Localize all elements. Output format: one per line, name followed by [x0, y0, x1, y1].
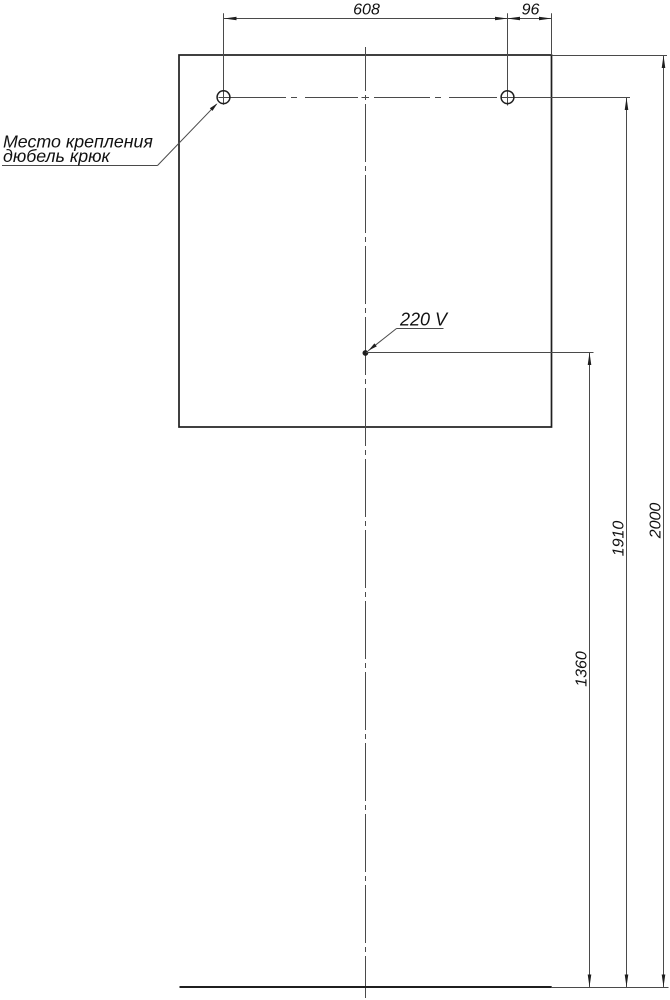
svg-text:дюбель крюк: дюбель крюк [3, 146, 110, 166]
svg-text:2000: 2000 [648, 503, 665, 540]
svg-text:96: 96 [522, 1, 540, 18]
svg-text:220 V: 220 V [399, 310, 449, 330]
svg-text:1910: 1910 [611, 521, 628, 557]
svg-text:608: 608 [353, 1, 380, 18]
svg-text:1360: 1360 [574, 651, 591, 687]
